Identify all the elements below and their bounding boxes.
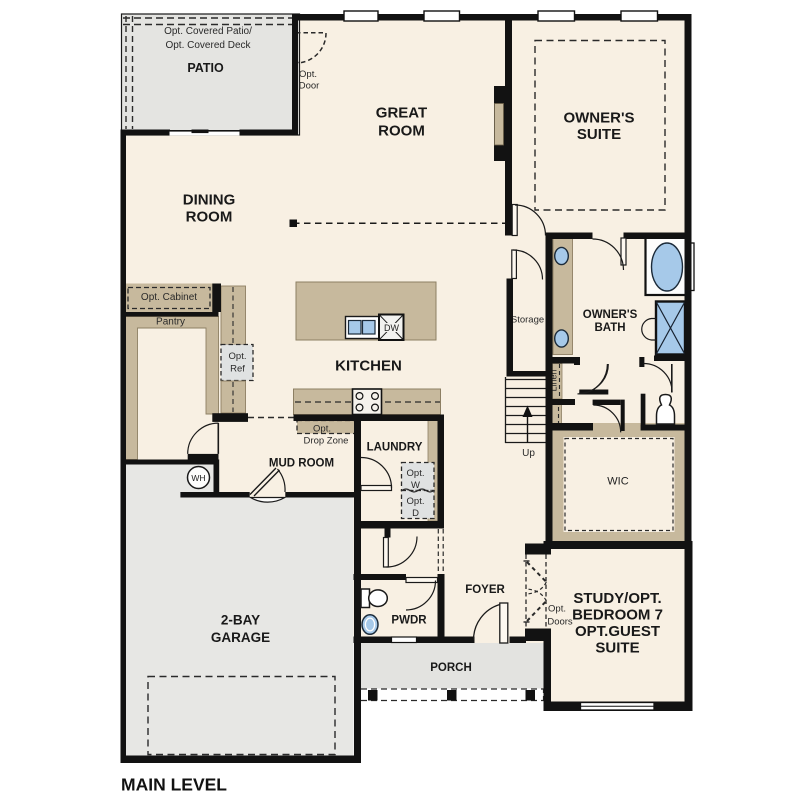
- svg-text:Opt.: Opt.: [407, 496, 425, 507]
- svg-text:MUD ROOM: MUD ROOM: [269, 458, 334, 470]
- svg-text:Opt.: Opt.: [407, 468, 425, 479]
- svg-text:DW: DW: [384, 323, 399, 333]
- svg-text:PWDR: PWDR: [391, 615, 427, 627]
- svg-text:Drop Zone: Drop Zone: [304, 436, 349, 447]
- svg-text:DINING: DINING: [183, 192, 236, 209]
- svg-text:D: D: [412, 508, 419, 519]
- svg-text:PATIO: PATIO: [187, 61, 224, 75]
- svg-text:LAUNDRY: LAUNDRY: [367, 442, 423, 454]
- svg-text:Opt.: Opt.: [548, 604, 566, 615]
- svg-text:STUDY/OPT.: STUDY/OPT.: [573, 590, 661, 607]
- svg-text:Opt.: Opt.: [229, 351, 247, 362]
- svg-text:Opt. Cabinet: Opt. Cabinet: [141, 292, 197, 303]
- svg-text:W: W: [411, 480, 420, 491]
- svg-text:ROOM: ROOM: [186, 209, 233, 226]
- svg-text:Door: Door: [299, 81, 320, 92]
- svg-text:BEDROOM 7: BEDROOM 7: [572, 607, 663, 624]
- svg-text:MAIN LEVEL: MAIN LEVEL: [121, 775, 227, 795]
- svg-text:BATH: BATH: [594, 322, 625, 334]
- svg-text:Storage: Storage: [511, 315, 544, 326]
- svg-text:Pantry: Pantry: [156, 317, 185, 328]
- svg-text:OWNER'S: OWNER'S: [563, 110, 634, 127]
- svg-text:Doors: Doors: [547, 617, 573, 628]
- svg-text:Opt.: Opt.: [313, 424, 331, 435]
- svg-text:GARAGE: GARAGE: [211, 630, 270, 645]
- svg-text:Opt.: Opt.: [299, 69, 317, 80]
- svg-text:WH: WH: [191, 473, 205, 483]
- svg-text:Ref: Ref: [230, 364, 245, 375]
- svg-text:SUITE: SUITE: [595, 640, 639, 657]
- svg-text:PORCH: PORCH: [430, 662, 472, 674]
- svg-text:OWNER'S: OWNER'S: [583, 309, 638, 321]
- svg-text:OPT.GUEST: OPT.GUEST: [575, 623, 660, 640]
- svg-text:SUITE: SUITE: [577, 126, 621, 143]
- svg-text:Opt. Covered Patio/: Opt. Covered Patio/: [164, 26, 252, 37]
- svg-text:KITCHEN: KITCHEN: [335, 358, 402, 375]
- svg-text:Up: Up: [522, 448, 535, 459]
- svg-text:Opt. Covered Deck: Opt. Covered Deck: [165, 40, 251, 51]
- svg-text:2-BAY: 2-BAY: [221, 613, 260, 628]
- svg-text:ROOM: ROOM: [378, 123, 425, 140]
- svg-text:FOYER: FOYER: [465, 584, 505, 596]
- svg-text:WIC: WIC: [607, 476, 628, 488]
- svg-text:GREAT: GREAT: [376, 105, 427, 122]
